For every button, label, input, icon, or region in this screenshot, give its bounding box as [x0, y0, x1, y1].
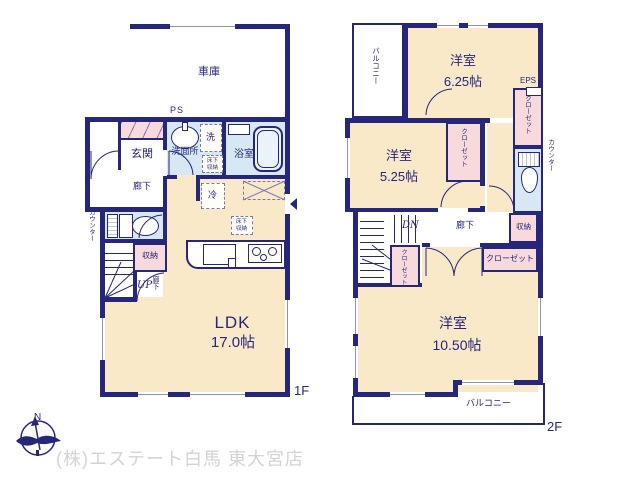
balcony-bottom-line — [352, 423, 545, 425]
ldk-bottom-window-a — [138, 392, 168, 397]
storage2-label: 収納 — [511, 223, 536, 231]
room525-label: 洋室 — [374, 149, 424, 163]
stairs2-treads — [388, 215, 420, 243]
balcony-bottom-label: バルコニー — [466, 399, 511, 409]
underfloor-storage-a-label: 床下収納 — [205, 158, 220, 171]
garage-label: 車庫 — [179, 66, 239, 78]
fridge-label: 冷 — [208, 191, 217, 201]
toilet2-door-arc — [488, 186, 514, 212]
washroom-door-arc — [168, 150, 194, 176]
room1050-label: 洋室 — [428, 316, 478, 331]
f2-bottom-window-left — [390, 392, 425, 397]
room625-window-a — [437, 23, 459, 28]
f2-left-window-a — [353, 298, 358, 334]
toilet1-tank — [119, 214, 133, 238]
f2-right-window — [538, 298, 543, 336]
room1050-area-c — [485, 272, 538, 287]
company-name: (株)エステート白馬 東大宮店 — [56, 450, 304, 470]
counter2-label: カウンター — [546, 139, 553, 185]
bath-label: 浴室 — [231, 149, 257, 160]
washroom-sink-tap — [182, 122, 188, 131]
ldk-size-label: 17.0帖 — [188, 335, 278, 352]
room625-window-b — [468, 23, 488, 28]
balcony-top-label: バルコニー — [372, 47, 380, 105]
bathtub-inner — [257, 130, 279, 168]
hall1-label: 廊下 — [129, 182, 155, 192]
balcony-bottom-left-line — [352, 396, 354, 425]
shoe-cabinet — [121, 122, 163, 140]
f1-left-connector-wall — [85, 207, 167, 212]
closet-d-label: クローゼット — [484, 255, 536, 264]
f2-left-window-b — [353, 346, 358, 378]
room525-left-window — [345, 138, 350, 178]
entrance-label: 玄関 — [123, 148, 161, 160]
kitchen-faucet — [228, 258, 236, 268]
counter1-label: カウンター — [87, 209, 94, 253]
hall-ldk-door-arc — [136, 271, 165, 301]
washer-label: 洗 — [206, 133, 215, 143]
closet-b-label: クローゼット — [459, 128, 466, 178]
floor2-label: 2F — [547, 420, 562, 434]
ps-label: PS — [170, 106, 184, 116]
ldk-bottom-window-b — [190, 392, 245, 397]
stairs1-winder-lines — [105, 262, 135, 298]
bath-counter — [228, 124, 250, 135]
toilet1-door-arc — [138, 214, 163, 239]
room525-door-arc — [440, 180, 468, 208]
room625-left-wall — [403, 23, 408, 118]
stove-burner-3 — [260, 254, 267, 261]
cabinet-x-lines — [243, 181, 285, 200]
compass-n-label: N — [34, 412, 41, 423]
room625-label: 洋室 — [438, 54, 488, 68]
ldk-left-window — [100, 318, 105, 360]
hall2f-label: 廊下 — [450, 221, 480, 231]
ldk-label: LDK — [190, 314, 275, 333]
underfloor-storage-b-label: 床下収納 — [234, 219, 249, 232]
balcony-bottom-right-line — [543, 383, 545, 425]
floorplan-canvas: 車庫 玄関 廊下 PS 洗面所 — [0, 0, 640, 480]
floor1-label: 1F — [294, 384, 309, 398]
room1050-door-arc-a — [425, 247, 455, 277]
closet-a-label: クローゼット — [523, 95, 530, 143]
closet-c-label: クローゼット — [400, 249, 406, 285]
room1050-size-label: 10.50帖 — [418, 338, 496, 353]
f2-bottom-window-right — [462, 380, 514, 385]
garage-right-wall — [285, 29, 290, 117]
stove-burner-2 — [268, 247, 277, 256]
toilet2-tank — [518, 152, 540, 167]
kitchen-door-marker — [290, 198, 297, 210]
entrance-door-arc — [90, 150, 120, 180]
washroom-bottom-wall-b — [196, 175, 285, 179]
room625-door-arc — [425, 88, 453, 116]
corridor-door-gap — [480, 186, 485, 206]
toilet1-counter — [107, 214, 118, 238]
kitchen-stub-wall — [196, 179, 200, 201]
room1050-door-arc-b — [453, 247, 483, 277]
eps-label: EPS — [520, 77, 536, 86]
hall2f-top-wall-a — [345, 208, 438, 212]
toilet1-right-wall — [163, 207, 167, 243]
room525-size-label: 5.25帖 — [368, 170, 430, 184]
storage1-label: 収納 — [136, 252, 164, 261]
ldk-right-window — [285, 300, 290, 348]
garage-window — [170, 24, 235, 29]
